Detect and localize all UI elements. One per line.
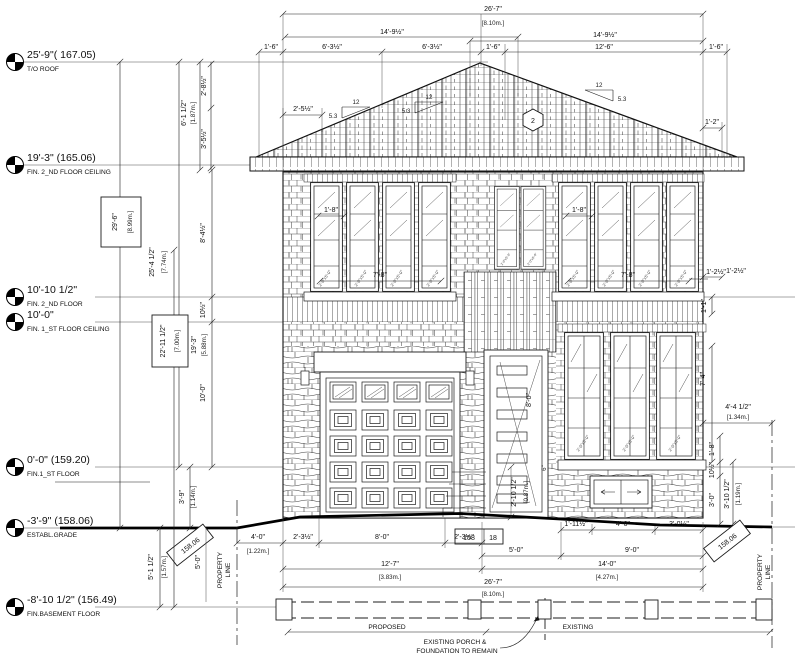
porch-note: EXISTING PORCH &	[424, 639, 487, 646]
svg-text:14'-9½": 14'-9½"	[593, 31, 617, 39]
svg-text:1'-1": 1'-1"	[701, 299, 708, 313]
svg-text:2'-3½": 2'-3½"	[454, 533, 474, 541]
stone-strip-door-right	[548, 352, 556, 518]
svg-text:[1.22m.]: [1.22m.]	[247, 548, 270, 555]
svg-text:2'-8½": 2'-8½"	[200, 76, 208, 96]
svg-text:2: 2	[531, 118, 535, 125]
level-marker-2nd-ceiling: 19'-3" (165.06) FIN. 2_ND FLOOR CEILING	[7, 152, 111, 176]
svg-text:[5.88m.]: [5.88m.]	[201, 334, 208, 357]
svg-text:25'-4 1/2": 25'-4 1/2"	[149, 247, 156, 277]
hip-roof	[256, 63, 737, 157]
level-marker-1st-ceiling: 10'-0" FIN. 1_ST FLOOR CEILING	[7, 309, 110, 333]
svg-text:1'-8": 1'-8"	[572, 207, 586, 214]
svg-text:2'-5½": 2'-5½"	[293, 105, 313, 113]
roof-slope-indicator-right: 12 5.3	[585, 82, 627, 103]
window-sill	[304, 292, 456, 301]
level-name: FIN.1_ST FLOOR	[27, 471, 80, 478]
svg-text:5'-0": 5'-0"	[195, 555, 202, 569]
svg-text:12: 12	[353, 99, 360, 106]
front-elevation-svg: 2'-0"x5'-0" 2'-0"x5'-0" 25'-9"( 167.0	[0, 0, 800, 671]
level-marker-to-roof: 25'-9"( 167.05) T/O ROOF	[7, 49, 96, 73]
basement-window	[590, 476, 652, 508]
property-line-label: PROPERTY	[757, 553, 764, 590]
svg-text:3'-5½": 3'-5½"	[200, 129, 208, 149]
svg-text:LINE: LINE	[765, 564, 772, 579]
level-marker-basement: -8'-10 1/2" (156.49) FIN.BASEMENT FLOOR	[7, 594, 117, 618]
svg-text:5.3: 5.3	[402, 108, 411, 115]
svg-text:12: 12	[426, 94, 433, 101]
svg-text:5'-0": 5'-0"	[509, 547, 523, 554]
svg-text:[1.19m.]: [1.19m.]	[735, 483, 742, 506]
svg-text:10½": 10½"	[708, 461, 716, 478]
porch-span-labels: PROPOSED EXISTING EXISTING PORCH & FOUND…	[285, 616, 773, 655]
svg-text:1'-2½": 1'-2½"	[706, 268, 726, 276]
svg-text:1'-6": 1'-6"	[709, 44, 723, 51]
level-name: FIN. 2_ND FLOOR	[27, 301, 83, 308]
svg-text:6'-3½": 6'-3½"	[422, 43, 442, 51]
level-elevation: 10'-10 1/2"	[27, 284, 77, 296]
svg-text:3'-10 1/2": 3'-10 1/2"	[724, 479, 731, 509]
svg-text:26'-7": 26'-7"	[484, 6, 502, 13]
svg-text:1'-8": 1'-8"	[324, 207, 338, 214]
property-line-label: PROPERTY	[217, 551, 224, 588]
level-name: FIN.BASEMENT FLOOR	[27, 611, 100, 618]
level-name: ESTABL.GRADE	[27, 532, 78, 539]
svg-text:7'-8": 7'-8"	[621, 272, 635, 279]
dimensions-right: 1'-2½" 1'-1" 7'-4" 1'-8" 10½" 3'-0" 3'-1…	[700, 267, 775, 527]
svg-text:18: 18	[489, 535, 497, 542]
level-elevation: 19'-3" (165.06)	[27, 152, 96, 164]
svg-text:9'-0": 9'-0"	[625, 547, 639, 554]
svg-text:[0.87m.]: [0.87m.]	[523, 481, 530, 504]
svg-text:[8.10m.]: [8.10m.]	[482, 591, 505, 598]
svg-text:4'-4 1/2": 4'-4 1/2"	[725, 404, 751, 411]
svg-text:8'-4½": 8'-4½"	[199, 223, 207, 243]
level-elevation: -3'-9" (158.06)	[27, 515, 93, 527]
garage-lintel-band	[314, 352, 466, 372]
svg-text:10½": 10½"	[199, 301, 207, 318]
level-elevation: 10'-0"	[27, 309, 54, 321]
svg-text:6'-1 1/2": 6'-1 1/2"	[181, 100, 188, 126]
svg-text:3'-0": 3'-0"	[709, 493, 716, 507]
svg-text:2'-3½": 2'-3½"	[293, 533, 313, 541]
window-sill	[552, 292, 704, 301]
svg-text:[1.57m.]: [1.57m.]	[161, 556, 168, 579]
svg-text:12'-6": 12'-6"	[595, 44, 613, 51]
svg-text:19'-3": 19'-3"	[191, 336, 198, 354]
svg-text:1'-8": 1'-8"	[709, 442, 716, 456]
svg-text:1'-2½": 1'-2½"	[726, 267, 746, 275]
svg-text:6": 6"	[541, 465, 548, 471]
shake-siding-band	[464, 272, 556, 352]
level-marker-1st-floor: 0'-0" (159.20) FIN.1_ST FLOOR	[7, 454, 151, 482]
svg-text:1'-11½": 1'-11½"	[564, 520, 588, 528]
svg-text:4'-0": 4'-0"	[251, 534, 265, 541]
svg-text:14'-9½": 14'-9½"	[380, 28, 404, 36]
svg-text:[8.10m.]: [8.10m.]	[482, 20, 505, 27]
svg-text:5.3: 5.3	[329, 113, 338, 120]
overall-height-box: 29'-6" [8.99m.]	[101, 197, 141, 247]
window-sill	[558, 460, 706, 470]
svg-text:4'-0": 4'-0"	[616, 521, 630, 528]
svg-text:[3.83m.]: [3.83m.]	[379, 574, 402, 581]
svg-text:8'-0": 8'-0"	[375, 534, 389, 541]
svg-text:FOUNDATION TO REMAIN: FOUNDATION TO REMAIN	[416, 648, 498, 655]
svg-text:2'-10 1/2": 2'-10 1/2"	[511, 477, 518, 507]
first-floor-brick-left	[283, 322, 466, 348]
level-elevation: 0'-0" (159.20)	[27, 454, 90, 466]
svg-text:26'-7": 26'-7"	[484, 579, 502, 586]
svg-text:12'-7": 12'-7"	[381, 561, 399, 568]
svg-text:8'-0": 8'-0"	[526, 393, 533, 407]
svg-text:12: 12	[596, 82, 603, 89]
svg-text:6'-3½": 6'-3½"	[322, 43, 342, 51]
svg-text:[8.99m.]: [8.99m.]	[127, 211, 134, 234]
fascia-soffit-band	[250, 157, 744, 171]
svg-text:7'-8": 7'-8"	[373, 272, 387, 279]
svg-text:1'-6": 1'-6"	[486, 44, 500, 51]
house-elevation	[250, 63, 744, 518]
first-floor-window-group-right	[558, 324, 706, 470]
svg-text:14'-0": 14'-0"	[598, 561, 616, 568]
svg-text:3'-0½": 3'-0½"	[669, 520, 689, 528]
proposed-label: PROPOSED	[368, 624, 406, 631]
level-elevation: -8'-10 1/2" (156.49)	[27, 594, 117, 606]
svg-text:[4.27m.]: [4.27m.]	[596, 574, 619, 581]
grade-elevation-box-left: 158.06	[167, 524, 214, 566]
level-name: FIN. 1_ST FLOOR CEILING	[27, 326, 110, 333]
svg-text:[1.87m.]: [1.87m.]	[190, 102, 197, 125]
svg-text:1'-2": 1'-2"	[705, 119, 719, 126]
dim-box-22-11: 22'-11 1/2" [7.00m.]	[152, 315, 188, 367]
svg-text:7'-4": 7'-4"	[700, 372, 707, 386]
svg-text:[7.74m.]: [7.74m.]	[161, 251, 168, 274]
existing-label: EXISTING	[563, 624, 594, 631]
svg-text:22'-11 1/2": 22'-11 1/2"	[160, 324, 167, 357]
svg-text:10'-0": 10'-0"	[200, 384, 207, 402]
level-name: FIN. 2_ND FLOOR CEILING	[27, 169, 111, 176]
svg-text:3'-9": 3'-9"	[179, 490, 186, 504]
svg-text:LINE: LINE	[225, 562, 232, 577]
level-name: T/O ROOF	[27, 66, 59, 73]
svg-text:1'-6": 1'-6"	[264, 44, 278, 51]
svg-text:5'-1 1/2": 5'-1 1/2"	[148, 554, 155, 580]
svg-text:29'-6": 29'-6"	[112, 213, 119, 231]
svg-text:5.3: 5.3	[618, 96, 627, 103]
level-marker-2nd-floor: 10'-10 1/2" FIN. 2_ND FLOOR	[7, 284, 83, 308]
svg-text:[7.00m.]: [7.00m.]	[174, 330, 181, 353]
level-elevation: 25'-9"( 167.05)	[27, 49, 96, 61]
garage-door	[314, 352, 466, 518]
porch-foundation	[276, 598, 772, 640]
svg-text:[1.14m.]: [1.14m.]	[190, 486, 197, 509]
elevation-drawing-sheet: 2'-0"x5'-0" 2'-0"x5'-0" 25'-9"( 167.0	[0, 0, 800, 671]
svg-text:[1.34m.]: [1.34m.]	[727, 414, 750, 421]
